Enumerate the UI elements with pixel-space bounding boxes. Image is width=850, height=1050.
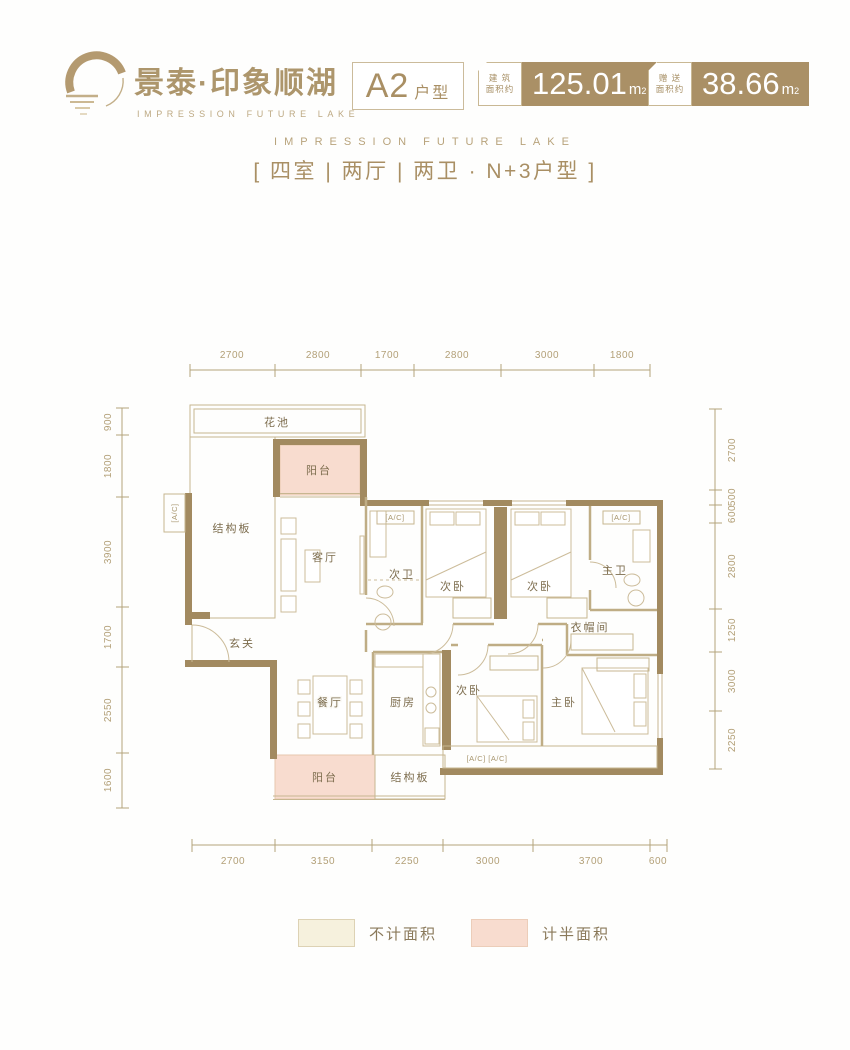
living-furniture: [281, 518, 364, 612]
legend-item-uncounted: 不计面积: [298, 919, 437, 947]
dim-label: 3900: [103, 540, 114, 564]
dim-label: 1600: [103, 768, 114, 792]
gift-area-label-line2: 面积约: [656, 84, 685, 95]
gift-area-unit-sup: 2: [794, 69, 799, 113]
building-area-label: 建 筑 面积约: [478, 62, 522, 106]
dim-label: 500: [727, 488, 738, 506]
dim-label: 2800: [306, 350, 330, 361]
room-label-foyer: 玄关: [229, 636, 255, 650]
room-label-slab-bottom: 结构板: [391, 770, 430, 784]
dim-label: 3000: [535, 350, 559, 361]
room-label-bed2b: 次卧: [527, 579, 553, 593]
legend: 不计面积 计半面积: [298, 919, 610, 947]
dim-label: 2250: [395, 856, 419, 867]
building-area-unit: m: [629, 68, 642, 112]
dim-label: 3000: [727, 669, 738, 693]
room-label-slab-top: 结构板: [213, 521, 252, 535]
ac-label-bottom: [A/C] [A/C]: [467, 754, 508, 763]
legend-label-uncounted: 不计面积: [369, 923, 437, 944]
dim-label: 600: [727, 505, 738, 523]
room-label-master-bath: 主卫: [602, 564, 628, 577]
brand-logo-icon: [60, 46, 132, 122]
room-label-flower-bed: 花池: [264, 416, 290, 429]
subheader-tagline: IMPRESSION FUTURE LAKE: [0, 136, 850, 148]
room-label-bed2a: 次卧: [440, 579, 466, 593]
unit-type-suffix: 户型: [414, 79, 450, 103]
dim-label: 1800: [103, 454, 114, 478]
floor-plan: [A/C] [A/C]: [85, 340, 770, 870]
room-label-kitchen: 厨房: [390, 696, 416, 709]
dimension-bottom: 2700 3150 2250 3000 3700 600: [192, 839, 667, 867]
brand-block: 景泰·印象顺湖 IMPRESSION FUTURE LAKE: [134, 58, 359, 119]
brand-tagline: IMPRESSION FUTURE LAKE: [134, 109, 359, 119]
bed-furniture: [426, 509, 648, 742]
room-label-balcony-bottom: 阳台: [312, 770, 338, 784]
dim-label: 1250: [727, 618, 738, 642]
dim-label: 3700: [579, 856, 603, 867]
gift-area-value: 38.66m2: [692, 62, 809, 106]
building-area-label-line1: 建 筑: [489, 73, 511, 84]
unit-type-box: A2 户型: [352, 62, 464, 110]
dim-label: 600: [649, 856, 667, 867]
room-label-bath2: 次卫: [389, 567, 415, 581]
dim-label: 3150: [311, 856, 335, 867]
gift-area-label-line1: 赠 送: [659, 73, 681, 84]
brand-name: 景泰·印象顺湖: [134, 58, 359, 102]
dim-label: 2700: [220, 350, 244, 361]
floorplan-poster: 景泰·印象顺湖 IMPRESSION FUTURE LAKE A2 户型 建 筑…: [0, 0, 850, 1050]
dimension-top: 2700 2800 1700 2800 3000 1800: [190, 350, 650, 377]
building-area-unit-sup: 2: [641, 69, 646, 113]
dim-label: 900: [103, 413, 114, 431]
ac-label-right: [A/C]: [611, 513, 630, 522]
dim-label: 2250: [727, 728, 738, 752]
dim-label: 2700: [221, 856, 245, 867]
legend-swatch-half: [471, 919, 528, 947]
room-label-living: 客厅: [312, 550, 338, 564]
dim-label: 2800: [727, 554, 738, 578]
dim-label: 2800: [445, 350, 469, 361]
room-label-cloakroom: 衣帽间: [571, 620, 610, 634]
building-area-value: 125.01m2: [522, 62, 656, 106]
dimension-right: 2700 500 600 2800 1250 3000 2250: [709, 409, 738, 769]
building-area-label-line2: 面积约: [486, 84, 515, 95]
room-label-balcony-top: 阳台: [306, 463, 332, 477]
building-area-number: 125.01: [532, 62, 627, 106]
building-area-badge: 建 筑 面积约 125.01m2: [478, 62, 656, 106]
legend-swatch-uncounted: [298, 919, 355, 947]
ac-label-mid: [A/C]: [385, 513, 404, 522]
room-label-bed2c: 次卧: [456, 683, 482, 697]
gift-area-number: 38.66: [702, 62, 780, 106]
dim-label: 1800: [610, 350, 634, 361]
legend-item-half: 计半面积: [471, 919, 610, 947]
dim-label: 1700: [103, 625, 114, 649]
dim-label: 3000: [476, 856, 500, 867]
gift-area-label: 赠 送 面积约: [648, 62, 692, 106]
ac-label-left: [A/C]: [170, 503, 179, 522]
dimension-left: 900 1800 3900 1700 2550 1600: [103, 408, 129, 808]
gift-area-badge: 赠 送 面积约 38.66m2: [648, 62, 809, 106]
dim-label: 2550: [103, 698, 114, 722]
dim-label: 2700: [727, 438, 738, 462]
gift-area-unit: m: [782, 68, 795, 112]
unit-type-code: A2: [366, 67, 410, 106]
legend-label-half: 计半面积: [542, 923, 610, 944]
unit-spec: [ 四室 | 两厅 | 两卫 · N+3户型 ]: [0, 155, 850, 185]
room-label-dining: 餐厅: [317, 695, 343, 709]
room-label-master-bed: 主卧: [551, 696, 577, 709]
dim-label: 1700: [375, 350, 399, 361]
